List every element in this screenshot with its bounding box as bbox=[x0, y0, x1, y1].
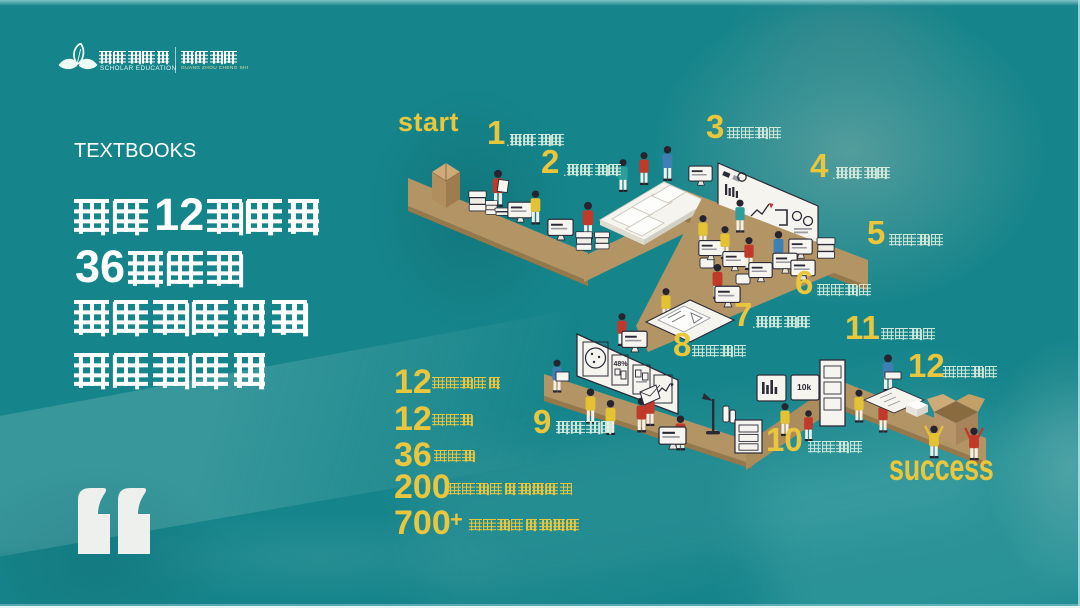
svg-text:48%: 48% bbox=[614, 361, 629, 368]
svg-text:10k: 10k bbox=[797, 382, 811, 392]
